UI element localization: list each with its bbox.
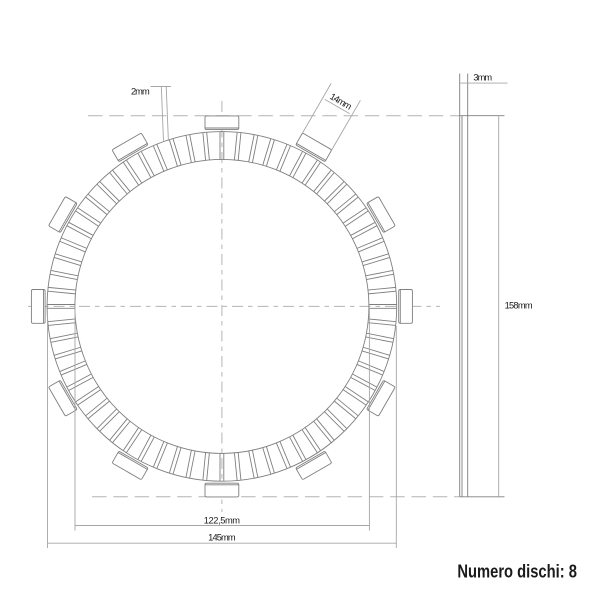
svg-text:122,5mm: 122,5mm	[204, 516, 241, 526]
svg-text:Numero dischi: 8: Numero dischi: 8	[457, 561, 577, 582]
svg-text:3mm: 3mm	[473, 73, 492, 83]
svg-text:158mm: 158mm	[505, 300, 533, 310]
svg-text:145mm: 145mm	[208, 532, 236, 542]
svg-text:2mm: 2mm	[131, 87, 150, 97]
